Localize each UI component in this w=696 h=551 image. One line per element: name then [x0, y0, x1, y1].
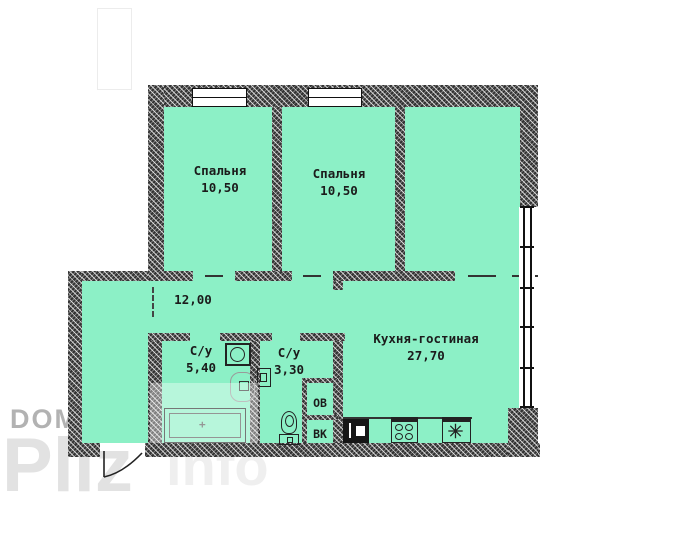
entrance-door-swing-icon: [95, 441, 147, 481]
wall-bath-top-c: [300, 333, 345, 341]
washing-machine-icon: [225, 343, 251, 366]
shaft-label-heating-vent: ОВ: [307, 396, 333, 410]
kitchen-sink-icon: [343, 419, 369, 443]
room-label-bedroom-1: Спальня 10,50: [172, 163, 268, 197]
room-area: 5,40: [178, 360, 224, 377]
wall-right-upper: [520, 85, 538, 207]
wall-corridor-c: [333, 271, 455, 281]
bathtub-drain-mark: +: [199, 418, 206, 431]
bidet-icon: [239, 381, 249, 391]
room-area: 27,70: [356, 348, 496, 365]
room-name: С/у: [266, 345, 312, 362]
wall-right-lower: [508, 408, 538, 457]
room-label-bathroom-1: С/у 5,40: [178, 343, 224, 377]
wall-bedroom-divider: [272, 107, 282, 281]
wall-shaft-divider: [302, 415, 338, 420]
room-name: Спальня: [172, 163, 268, 180]
room-label-bathroom-2: С/у 3,30: [266, 345, 312, 379]
window-tick: [520, 246, 534, 248]
window-line: [530, 207, 532, 408]
room-label-hallway: 12,00: [167, 292, 219, 309]
room-name: С/у: [178, 343, 224, 360]
room-area: 10,50: [291, 183, 387, 200]
room-area: 12,00: [167, 292, 219, 309]
wall-bath-top-a: [148, 333, 190, 341]
zone-dash-kitchen: [468, 275, 496, 277]
room-area: 3,30: [266, 362, 312, 379]
window-tick: [520, 287, 534, 289]
door-dash-bedroom2: [303, 275, 321, 277]
fridge-icon: [442, 417, 471, 443]
window-line: [523, 207, 525, 408]
window-tick: [520, 367, 534, 369]
wall-kitchen-left: [333, 341, 343, 443]
door-dash-bedroom1: [205, 275, 223, 277]
window-kitchen-panoramic: [519, 207, 535, 408]
zone-dash-hallway: [152, 287, 154, 317]
room-name: Спальня: [291, 166, 387, 183]
room-area: 10,50: [172, 180, 268, 197]
window-tick: [520, 326, 534, 328]
floorplan-canvas: DOM Pliz info: [0, 0, 696, 551]
wall-corridor-b: [235, 271, 292, 281]
wall-left-upper: [148, 85, 164, 281]
window-bedroom1: [192, 88, 247, 107]
wall-shaft-top: [302, 378, 338, 383]
wall-bath-top-b: [220, 333, 272, 341]
bathtub-icon: +: [164, 408, 246, 443]
shaft-label-water-sewer: ВК: [307, 427, 333, 441]
wall-bedroom2-kitchen: [395, 107, 405, 281]
wall-left-lower: [68, 271, 82, 457]
wall-corridor-a: [148, 271, 193, 281]
stove-icon: [391, 417, 418, 443]
room-name: Кухня-гостиная: [356, 331, 496, 348]
wall-corridor-c-step: [333, 281, 343, 290]
room-label-kitchen-living: Кухня-гостиная 27,70: [356, 331, 496, 365]
wall-bottom-main: [145, 443, 540, 457]
ghost-outline: [97, 8, 132, 90]
window-tick: [520, 206, 534, 208]
window-bedroom2: [308, 88, 362, 107]
wall-bath-left: [148, 341, 162, 443]
room-label-bedroom-2: Спальня 10,50: [291, 166, 387, 200]
toilet-icon: [279, 411, 299, 445]
window-tick: [520, 406, 534, 408]
snowflake-icon: [447, 423, 464, 439]
